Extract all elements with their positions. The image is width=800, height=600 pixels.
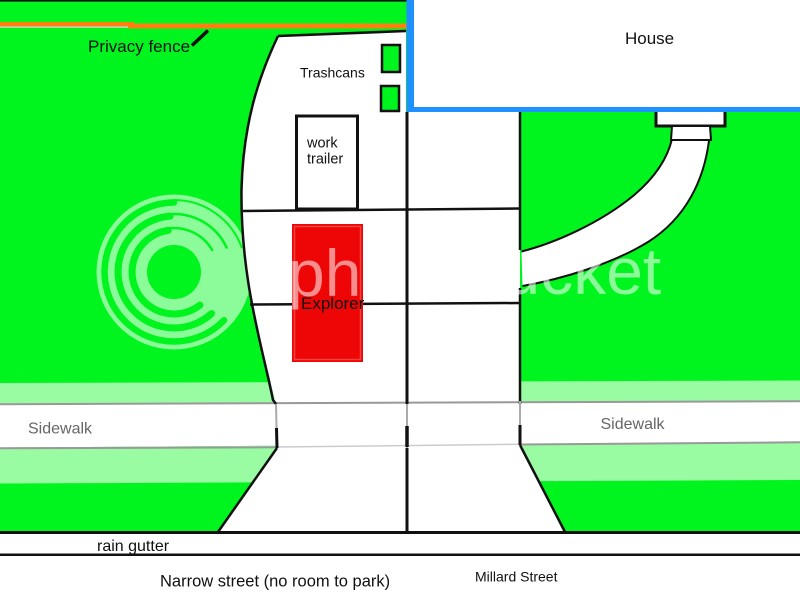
svg-text:work: work [306,136,338,152]
svg-text:Privacy fence: Privacy fence [88,37,190,56]
svg-text:Trashcans: Trashcans [300,65,365,81]
svg-text:ucket: ucket [504,234,662,308]
svg-text:Sidewalk: Sidewalk [601,416,666,433]
svg-text:Millard Street: Millard Street [475,569,558,585]
svg-text:House: House [625,29,674,48]
svg-text:rain gutter: rain gutter [97,538,170,555]
svg-text:trailer: trailer [307,152,343,168]
svg-text:Narrow street (no room to park: Narrow street (no room to park) [160,573,390,591]
svg-text:Explorer: Explorer [301,294,365,313]
svg-text:Sidewalk: Sidewalk [28,421,93,438]
